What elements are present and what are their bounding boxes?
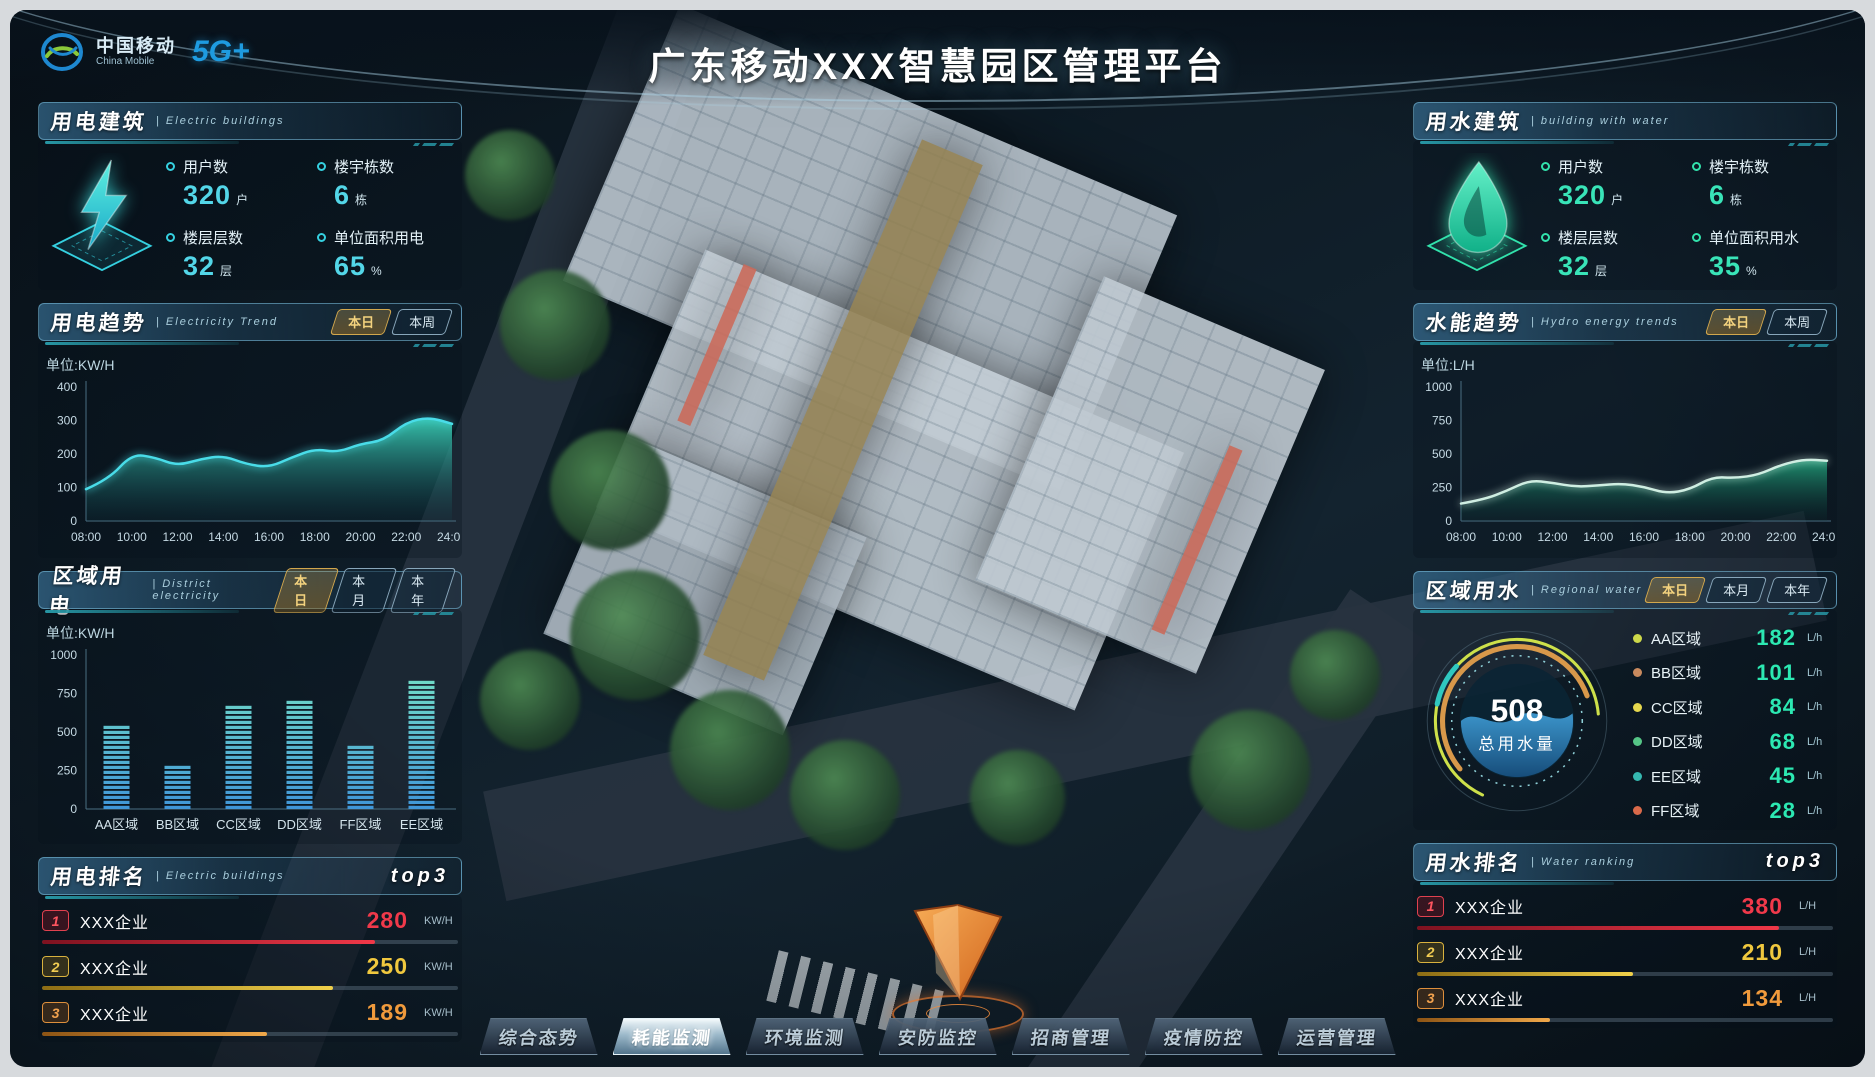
ranking-row: 1 XXX企业 280 KW/H — [42, 907, 458, 944]
panel-subtitle: | District electricity — [152, 578, 279, 602]
tree — [480, 650, 580, 750]
tab-week[interactable]: 本周 — [391, 309, 453, 335]
electricity-trend-chart-area: 单位:KW/H 010020030040008:0010:0012:0014:0… — [38, 341, 462, 558]
regional-water-body: 508 总用水量 AA区域 182 L/h BB区域 101 L/h — [1413, 609, 1837, 830]
svg-text:08:00: 08:00 — [71, 530, 101, 544]
ranking-row: 2 XXX企业 250 KW/H — [42, 953, 458, 990]
legend-dot-icon — [1633, 634, 1642, 643]
svg-text:20:00: 20:00 — [345, 530, 375, 544]
nav-item-investment[interactable]: 招商管理 — [1012, 1018, 1130, 1055]
panel-header: 用电排名 | Electric buildings top3 — [38, 857, 462, 895]
svg-text:250: 250 — [57, 764, 77, 778]
stat-buildings: 楼宇栋数 6栋 — [317, 156, 462, 211]
panel-header: 区域用电 | District electricity 本日 本月 本年 — [38, 571, 462, 609]
rank-badge: 1 — [42, 910, 69, 931]
dashboard-screen: 广东移动XXX智慧园区管理平台 中国移动 China Mobile 5G+ 用电… — [10, 10, 1865, 1067]
nav-item-epidemic[interactable]: 疫情防控 — [1145, 1018, 1263, 1055]
legend-item: EE区域 45 L/h — [1633, 763, 1835, 789]
tree — [570, 570, 700, 700]
location-marker — [892, 903, 1024, 1033]
svg-text:250: 250 — [1432, 481, 1452, 495]
nav-item-environment[interactable]: 环境监测 — [746, 1018, 864, 1055]
svg-text:750: 750 — [1432, 414, 1452, 428]
top3-badge: top3 — [391, 865, 449, 888]
panel-subtitle: | Electricity Trend — [156, 316, 278, 328]
tab-today[interactable]: 本日 — [1705, 309, 1767, 335]
bullet-icon — [166, 162, 175, 171]
panel-title: 用电趋势 — [49, 307, 149, 337]
svg-text:1000: 1000 — [1425, 380, 1452, 394]
svg-text:24:00: 24:00 — [437, 530, 460, 544]
panel-header: 用电趋势 | Electricity Trend 本日 本周 — [38, 303, 462, 341]
tab-today[interactable]: 本日 — [272, 568, 338, 613]
panel-header: 用水建筑 | building with water — [1413, 102, 1837, 140]
svg-text:400: 400 — [57, 380, 77, 394]
panel-subtitle: | Regional water — [1531, 584, 1642, 596]
rank-bar — [42, 986, 458, 990]
svg-text:500: 500 — [1432, 447, 1452, 461]
legend-item: DD区域 68 L/h — [1633, 729, 1835, 755]
bullet-icon — [166, 233, 175, 242]
water-total-gauge: 508 总用水量 — [1415, 619, 1619, 823]
svg-text:18:00: 18:00 — [1675, 530, 1705, 544]
brand-logo: 中国移动 China Mobile 5G+ — [40, 30, 250, 74]
svg-text:18:00: 18:00 — [300, 530, 330, 544]
svg-text:0: 0 — [70, 514, 77, 528]
rank-bar — [1417, 972, 1833, 976]
rank-bar — [42, 940, 458, 944]
svg-text:0: 0 — [70, 802, 77, 816]
tree — [550, 430, 670, 550]
bullet-icon — [1692, 162, 1701, 171]
svg-text:300: 300 — [57, 414, 77, 428]
legend-dot-icon — [1633, 737, 1642, 746]
panel-title: 用水建筑 — [1424, 106, 1524, 136]
rank-bar — [1417, 926, 1833, 930]
bullet-icon — [1692, 233, 1701, 242]
svg-text:14:00: 14:00 — [1583, 530, 1613, 544]
panel-electricity-trend: 用电趋势 | Electricity Trend 本日 本周 单位:KW/H 0… — [38, 303, 462, 558]
district-electricity-bar-chart: 02505007501000AA区域BB区域CC区域DD区域FF区域EE区域 — [40, 643, 460, 839]
gauge-total-label: 总用水量 — [1478, 736, 1556, 754]
tree — [1290, 630, 1380, 720]
panel-subtitle: | Water ranking — [1531, 856, 1635, 868]
gauge-total-value: 508 — [1491, 692, 1544, 728]
electric-ranking-list: 1 XXX企业 280 KW/H 2 XXX企业 250 KW/H — [38, 895, 462, 1042]
panel-hydro-trend: 水能趋势 | Hydro energy trends 本日 本周 单位:L/H … — [1413, 303, 1837, 558]
tree — [500, 270, 610, 380]
panel-subtitle: | Electric buildings — [156, 115, 284, 127]
panel-title: 用电排名 — [49, 861, 149, 891]
bottom-nav: 综合态势 耗能监测 环境监测 安防监控 招商管理 疫情防控 运营管理 — [480, 1018, 1396, 1055]
svg-text:EE区域: EE区域 — [400, 817, 443, 832]
ranking-row: 3 XXX企业 189 KW/H — [42, 999, 458, 1036]
svg-text:FF区域: FF区域 — [340, 817, 382, 832]
region-legend: AA区域 182 L/h BB区域 101 L/h CC区域 84 — [1633, 619, 1835, 824]
top3-badge: top3 — [1766, 850, 1824, 873]
electricity-trend-chart: 010020030040008:0010:0012:0014:0016:0018… — [40, 375, 460, 553]
electric-building-stats: 用户数 320户 楼宇栋数 6栋 楼层层数 32层 单位面积用电 65% — [38, 140, 462, 290]
china-mobile-logo-icon — [40, 30, 84, 74]
lightning-icon — [38, 150, 166, 282]
right-column: 用水建筑 | building with water — [1413, 102, 1837, 1028]
tree — [670, 690, 790, 810]
unit-label: 单位:KW/H — [46, 623, 460, 643]
svg-text:24:00: 24:00 — [1812, 530, 1835, 544]
svg-text:CC区域: CC区域 — [216, 817, 261, 832]
panel-header: 用电建筑 | Electric buildings — [38, 102, 462, 140]
panel-regional-water: 区域用水 | Regional water 本日 本月 本年 — [1413, 571, 1837, 830]
unit-label: 单位:KW/H — [46, 355, 460, 375]
svg-text:500: 500 — [57, 725, 77, 739]
unit-label: 单位:L/H — [1421, 355, 1835, 375]
bullet-icon — [317, 162, 326, 171]
svg-text:12:00: 12:00 — [162, 530, 192, 544]
tree — [970, 750, 1065, 845]
svg-text:0: 0 — [1445, 514, 1452, 528]
stat-per-area: 单位面积用水 35% — [1692, 227, 1837, 282]
svg-text:BB区域: BB区域 — [156, 817, 199, 832]
building-accent — [1151, 445, 1242, 635]
nav-item-security[interactable]: 安防监控 — [879, 1018, 997, 1055]
svg-text:16:00: 16:00 — [1629, 530, 1659, 544]
panel-electric-building: 用电建筑 | Electric buildings 用户数 — [38, 102, 462, 290]
panel-district-electricity: 区域用电 | District electricity 本日 本月 本年 单位:… — [38, 571, 462, 844]
panel-title: 用电建筑 — [49, 106, 149, 136]
tab-month[interactable]: 本月 — [331, 568, 397, 613]
panel-subtitle: | Electric buildings — [156, 870, 284, 882]
panel-title: 区域用水 — [1424, 575, 1524, 605]
panel-subtitle: | Hydro energy trends — [1531, 316, 1679, 328]
building-block — [596, 250, 1184, 711]
logo-text-cn: 中国移动 — [96, 37, 176, 57]
bullet-icon — [1541, 233, 1550, 242]
stat-floors: 楼层层数 32层 — [166, 227, 311, 282]
stat-buildings: 楼宇栋数 6栋 — [1692, 156, 1837, 211]
logo-text-en: China Mobile — [96, 56, 176, 67]
legend-dot-icon — [1633, 772, 1642, 781]
nav-item-energy-monitor[interactable]: 耗能监测 — [613, 1018, 731, 1055]
building-accent — [677, 264, 756, 426]
outer-frame: 广东移动XXX智慧园区管理平台 中国移动 China Mobile 5G+ 用电… — [0, 0, 1875, 1077]
hydro-trend-chart: 0250500750100008:0010:0012:0014:0016:001… — [1415, 375, 1835, 553]
svg-text:22:00: 22:00 — [1766, 530, 1796, 544]
road — [925, 589, 1426, 1067]
district-electricity-chart-area: 单位:KW/H 02505007501000AA区域BB区域CC区域DD区域FF… — [38, 609, 462, 844]
panel-subtitle: | building with water — [1531, 115, 1669, 127]
tab-today[interactable]: 本日 — [1644, 577, 1706, 603]
panel-water-building: 用水建筑 | building with water — [1413, 102, 1837, 290]
svg-text:10:00: 10:00 — [1492, 530, 1522, 544]
svg-text:750: 750 — [57, 687, 77, 701]
water-building-stats: 用户数 320户 楼宇栋数 6栋 楼层层数 32层 单位面积用水 35% — [1413, 140, 1837, 290]
legend-dot-icon — [1633, 668, 1642, 677]
building-block — [543, 436, 866, 735]
rank-badge: 1 — [1417, 896, 1444, 917]
legend-item: FF区域 28 L/h — [1633, 798, 1835, 824]
legend-item: AA区域 182 L/h — [1633, 625, 1835, 651]
svg-text:100: 100 — [57, 481, 77, 495]
tree — [1190, 710, 1310, 830]
svg-text:200: 200 — [57, 447, 77, 461]
svg-text:20:00: 20:00 — [1720, 530, 1750, 544]
legend-dot-icon — [1633, 703, 1642, 712]
stat-floors: 楼层层数 32层 — [1541, 227, 1686, 282]
stat-per-area: 单位面积用电 65% — [317, 227, 462, 282]
rank-bar — [42, 1032, 458, 1036]
panel-title: 用水排名 — [1424, 847, 1524, 877]
svg-text:10:00: 10:00 — [117, 530, 147, 544]
legend-item: CC区域 84 L/h — [1633, 694, 1835, 720]
stat-users: 用户数 320户 — [1541, 156, 1686, 211]
panel-water-ranking: 用水排名 | Water ranking top3 1 XXX企业 380 L/… — [1413, 843, 1837, 1028]
panel-header: 区域用水 | Regional water 本日 本月 本年 — [1413, 571, 1837, 609]
legend-item: BB区域 101 L/h — [1633, 660, 1835, 686]
svg-text:12:00: 12:00 — [1537, 530, 1567, 544]
hydro-trend-chart-area: 单位:L/H 0250500750100008:0010:0012:0014:0… — [1413, 341, 1837, 558]
tab-year[interactable]: 本年 — [1766, 577, 1828, 603]
tab-today[interactable]: 本日 — [330, 309, 392, 335]
ranking-row: 2 XXX企业 210 L/H — [1417, 939, 1833, 976]
tab-month[interactable]: 本月 — [1705, 577, 1767, 603]
courtyard-path — [703, 139, 983, 680]
svg-text:16:00: 16:00 — [254, 530, 284, 544]
tab-week[interactable]: 本周 — [1766, 309, 1828, 335]
header: 广东移动XXX智慧园区管理平台 — [10, 10, 1865, 106]
svg-text:22:00: 22:00 — [391, 530, 421, 544]
bullet-icon — [1541, 162, 1550, 171]
rank-badge: 3 — [1417, 988, 1444, 1009]
panel-header: 用水排名 | Water ranking top3 — [1413, 843, 1837, 881]
svg-text:AA区域: AA区域 — [95, 817, 138, 832]
rank-bar — [1417, 1018, 1833, 1022]
nav-item-operations[interactable]: 运营管理 — [1278, 1018, 1396, 1055]
building-block — [975, 276, 1325, 674]
rank-badge: 2 — [42, 956, 69, 977]
tree — [465, 130, 555, 220]
nav-item-overview[interactable]: 综合态势 — [480, 1018, 598, 1055]
panel-title: 水能趋势 — [1424, 307, 1524, 337]
pin-arrow-icon — [903, 903, 1013, 1007]
water-ranking-list: 1 XXX企业 380 L/H 2 XXX企业 210 L/H — [1413, 881, 1837, 1028]
svg-text:14:00: 14:00 — [208, 530, 238, 544]
tree — [790, 740, 900, 850]
panel-electric-ranking: 用电排名 | Electric buildings top3 1 XXX企业 2… — [38, 857, 462, 1042]
ranking-row: 1 XXX企业 380 L/H — [1417, 893, 1833, 930]
panel-header: 水能趋势 | Hydro energy trends 本日 本周 — [1413, 303, 1837, 341]
rank-badge: 3 — [42, 1002, 69, 1023]
svg-text:08:00: 08:00 — [1446, 530, 1476, 544]
stat-users: 用户数 320户 — [166, 156, 311, 211]
left-column: 用电建筑 | Electric buildings 用户数 — [38, 102, 462, 1042]
legend-dot-icon — [1633, 806, 1642, 815]
rank-badge: 2 — [1417, 942, 1444, 963]
bullet-icon — [317, 233, 326, 242]
water-drop-icon — [1413, 150, 1541, 282]
page-title: 广东移动XXX智慧园区管理平台 — [648, 36, 1226, 90]
svg-text:1000: 1000 — [50, 648, 77, 662]
logo-5g: 5G+ — [192, 35, 250, 69]
tab-year[interactable]: 本年 — [390, 568, 456, 613]
svg-text:DD区域: DD区域 — [277, 817, 322, 832]
ranking-row: 3 XXX企业 134 L/H — [1417, 985, 1833, 1022]
